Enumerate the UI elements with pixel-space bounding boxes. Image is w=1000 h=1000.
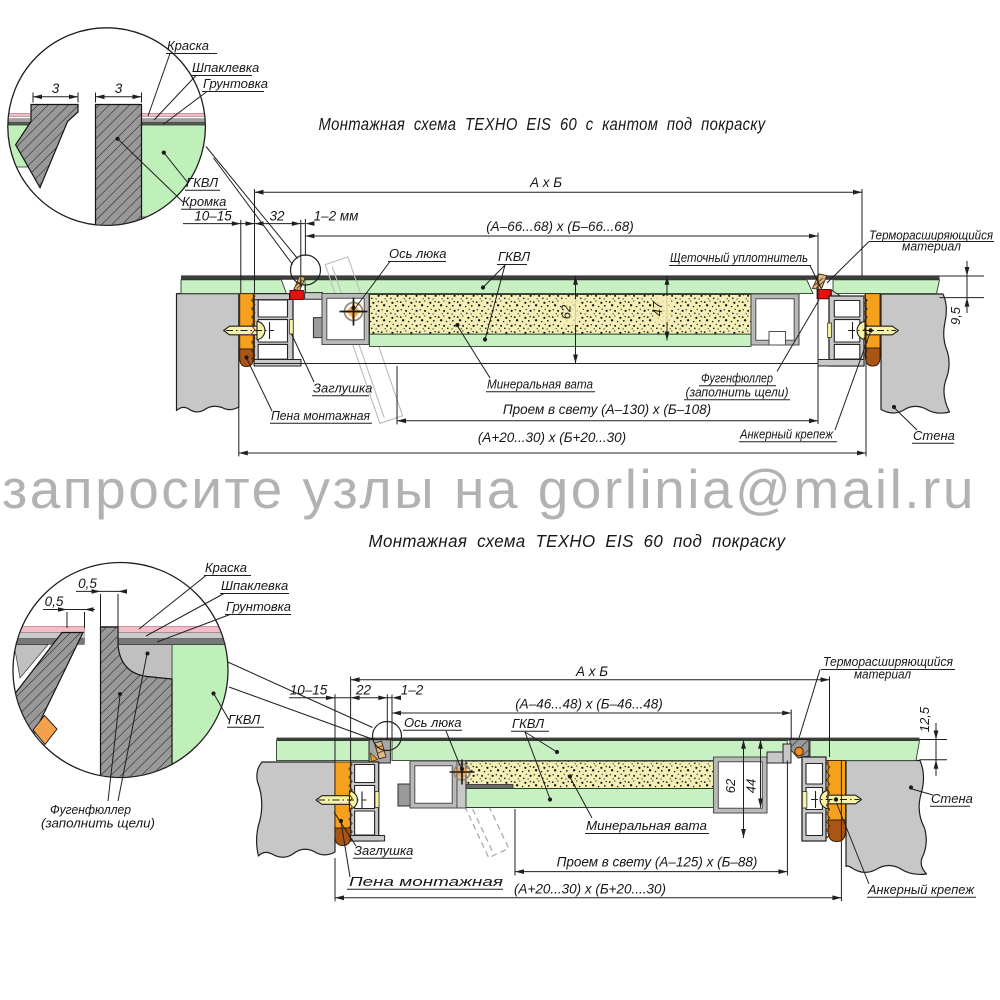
svg-text:ГКВЛ: ГКВЛ bbox=[512, 716, 544, 731]
svg-text:(заполнить щели): (заполнить щели) bbox=[41, 816, 155, 831]
svg-text:44: 44 bbox=[744, 779, 759, 793]
svg-text:Шпаклевка: Шпаклевка bbox=[221, 578, 288, 593]
svg-text:Минеральная вата: Минеральная вата bbox=[487, 377, 593, 392]
svg-text:1–2: 1–2 bbox=[401, 683, 424, 698]
svg-text:(А+20...30) х (Б+20...30): (А+20...30) х (Б+20...30) bbox=[478, 430, 626, 445]
svg-text:62: 62 bbox=[723, 778, 738, 793]
svg-text:ГКВЛ: ГКВЛ bbox=[498, 249, 530, 264]
svg-text:Монтажная схема ТЕХНО EIS: Монтажная схема ТЕХНО EIS 60 под покраск… bbox=[369, 531, 787, 551]
svg-text:ГКВЛ: ГКВЛ bbox=[186, 175, 218, 190]
svg-text:Грунтовка: Грунтовка bbox=[203, 76, 268, 91]
svg-text:62: 62 bbox=[559, 304, 574, 319]
svg-text:Щеточный уплотнитель: Щеточный уплотнитель bbox=[670, 250, 808, 265]
svg-text:0,5: 0,5 bbox=[78, 576, 97, 591]
svg-text:3: 3 bbox=[52, 81, 60, 96]
svg-text:47: 47 bbox=[650, 301, 665, 316]
svg-text:материал: материал bbox=[854, 667, 912, 682]
svg-text:32: 32 bbox=[269, 209, 285, 224]
svg-text:Кромка: Кромка bbox=[182, 194, 226, 209]
svg-text:0,5: 0,5 bbox=[45, 594, 64, 609]
svg-text:12,5: 12,5 bbox=[917, 706, 932, 732]
svg-text:22: 22 bbox=[355, 683, 372, 698]
svg-text:Ось люка: Ось люка bbox=[404, 715, 462, 730]
svg-text:10–15: 10–15 bbox=[194, 209, 232, 224]
svg-text:Стена: Стена bbox=[913, 428, 955, 443]
svg-text:Ось люка: Ось люка bbox=[389, 246, 447, 261]
svg-text:Минеральная вата: Минеральная вата bbox=[586, 818, 707, 833]
svg-text:10–15: 10–15 bbox=[290, 683, 328, 698]
svg-text:Фугенфюллер: Фугенфюллер bbox=[701, 371, 773, 386]
svg-text:9,5: 9,5 bbox=[948, 306, 963, 325]
svg-text:ГКВЛ: ГКВЛ bbox=[228, 712, 260, 727]
svg-text:Краска: Краска bbox=[167, 38, 209, 53]
svg-text:А х Б: А х Б bbox=[529, 175, 562, 190]
svg-text:Стена: Стена bbox=[931, 791, 973, 806]
svg-text:1–2 мм: 1–2 мм bbox=[314, 209, 359, 224]
svg-text:Монтажная схема ТЕХНО EIS: Монтажная схема ТЕХНО EIS 60 с кантом по… bbox=[319, 114, 767, 134]
svg-text:запросите узлы на gorlinia@mai: запросите узлы на gorlinia@mail.ru bbox=[2, 458, 974, 520]
svg-text:Грунтовка: Грунтовка bbox=[226, 599, 291, 614]
svg-text:(заполнить щели): (заполнить щели) bbox=[686, 385, 789, 400]
svg-text:Проем в свету (А–130) х (: Проем в свету (А–130) х (Б–108) bbox=[503, 402, 711, 417]
svg-text:Анкерный крепеж: Анкерный крепеж bbox=[867, 882, 975, 897]
svg-text:Проем в свету (А–125) х (: Проем в свету (А–125) х (Б–88) bbox=[557, 855, 758, 870]
svg-text:(А–46...48) х (Б–46...48): (А–46...48) х (Б–46...48) bbox=[515, 697, 663, 712]
svg-text:Краска: Краска bbox=[205, 560, 247, 575]
svg-text:3: 3 bbox=[115, 81, 123, 96]
svg-text:Анкерный крепеж: Анкерный крепеж bbox=[739, 427, 834, 442]
svg-text:Заглушка: Заглушка bbox=[313, 381, 372, 396]
svg-text:(А–66...68) х (Б–66...68): (А–66...68) х (Б–66...68) bbox=[486, 219, 634, 234]
svg-text:Пена монтажная: Пена монтажная bbox=[349, 874, 503, 889]
svg-text:А х Б: А х Б bbox=[575, 664, 608, 679]
svg-text:Шпаклевка: Шпаклевка bbox=[192, 60, 259, 75]
svg-text:Заглушка: Заглушка bbox=[354, 843, 413, 858]
svg-text:(А+20...30) х (Б+20....30): (А+20...30) х (Б+20....30) bbox=[514, 882, 666, 897]
svg-text:материал: материал bbox=[902, 239, 962, 254]
svg-text:Пена монтажная: Пена монтажная bbox=[271, 408, 370, 423]
